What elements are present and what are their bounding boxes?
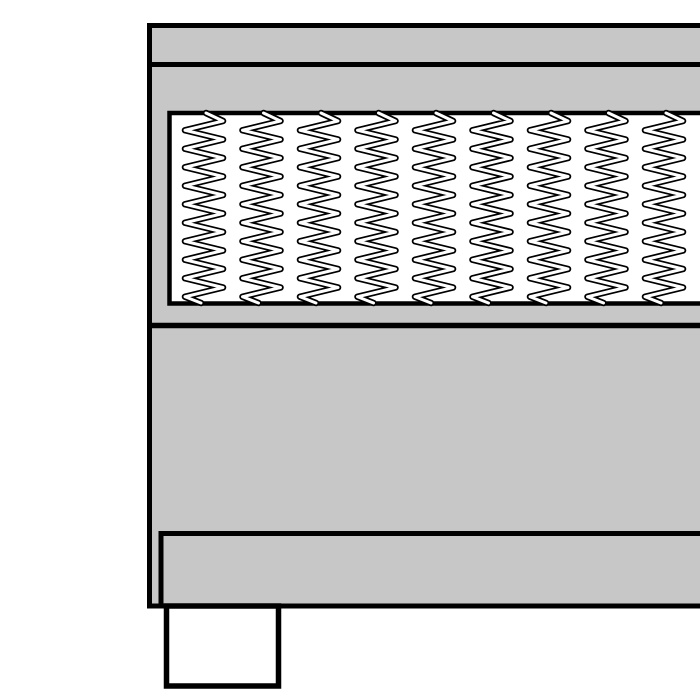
bed-bottom-rail <box>161 534 700 607</box>
bed-scene <box>147 26 700 687</box>
bed-leg <box>167 606 279 686</box>
bed-illustration-canvas <box>0 0 700 700</box>
box-spring-bed-illustration <box>0 0 700 700</box>
